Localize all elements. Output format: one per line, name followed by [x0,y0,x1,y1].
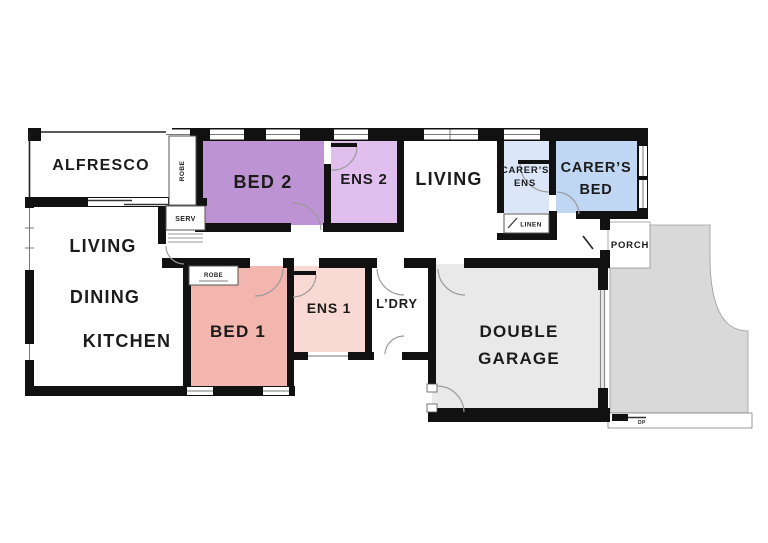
wall-bed1-right [287,258,294,396]
driveway-apron [608,413,752,428]
wall-hall-e [464,258,608,268]
wall-porch-top [600,219,610,230]
wall-bottom-left [25,386,295,396]
robe-bed2-label: ROBE [179,161,186,182]
window-ens1 [308,352,348,360]
window-right-carers-b [639,180,647,208]
window-top-living [424,130,478,140]
window-top-bed2-b [266,130,300,140]
downpipe-label: DP [638,420,646,426]
label-garage-line2: GARAGE [478,349,560,368]
label-carers-ens-line2: ENS [514,178,536,189]
room-carers-bed [556,140,637,213]
window-top-ens2 [334,130,368,140]
wall-ens1-bottom-b [348,352,374,360]
label-bed2: BED 2 [233,172,292,192]
robe-bed1: ROBE [189,266,238,285]
label-carers-ens-line1: CARER’S [501,165,549,176]
label-porch: PORCH [611,240,649,251]
label-living-main: LIVING [69,236,136,256]
window-right-carers-a [639,146,647,176]
ens1-door-leaf [293,271,316,275]
label-carers-bed-line2: BED [579,182,612,198]
wall-garage-right-a [598,262,608,290]
wall-carers-divider [549,141,556,195]
window-bed1-b [263,387,289,395]
window-left-living [25,208,34,270]
label-garage-line1: DOUBLE [480,322,559,341]
room-carers-ens [504,140,549,213]
label-kitchen: KITCHEN [83,331,171,351]
linen-label: LINEN [520,222,542,229]
label-alfresco: ALFRESCO [52,157,150,174]
floorplan-svg: ROBE SERV LINEN ROBE DP ALFRESCO LIVING [0,0,768,543]
serv-label: SERV [175,216,196,223]
window-top-bed2-a [210,130,244,140]
robe-bed2: ROBE [169,136,196,205]
ens2-door-leaf [331,143,357,147]
label-ens2: ENS 2 [340,171,387,188]
window-bed1-a [187,387,213,395]
wall-garage-right-b [598,388,608,410]
label-dining: DINING [70,287,140,307]
window-top-carers [504,130,540,140]
label-carers-bed-line1: CARER’S [561,160,632,176]
wall-linen-bottom [497,233,554,240]
label-living-top: LIVING [415,169,482,189]
floorplan-canvas: ROBE SERV LINEN ROBE DP ALFRESCO LIVING [0,0,768,543]
label-bed1: BED 1 [210,322,266,341]
linen-cupboard: LINEN [504,214,549,233]
wall-bed2-bottom-a [196,223,291,232]
wall-ens1-ldry-divider [365,258,372,358]
window-left-kitchen [25,344,34,360]
carers-ens-door-leaf [518,160,549,164]
wall-bed2-ens2-divider [324,164,331,223]
wall-ens2-bottom [323,223,404,232]
wall-garage-bottom [428,408,610,422]
wall-ens2-living-divider [397,133,404,232]
wall-garage-left-a [428,258,436,384]
label-ens1: ENS 1 [307,300,351,316]
wall-ens1-bottom-a [287,352,308,360]
robe-bed1-label: ROBE [204,273,223,279]
label-ldry: L’DRY [376,296,418,311]
alfresco-slider-door [88,198,168,206]
